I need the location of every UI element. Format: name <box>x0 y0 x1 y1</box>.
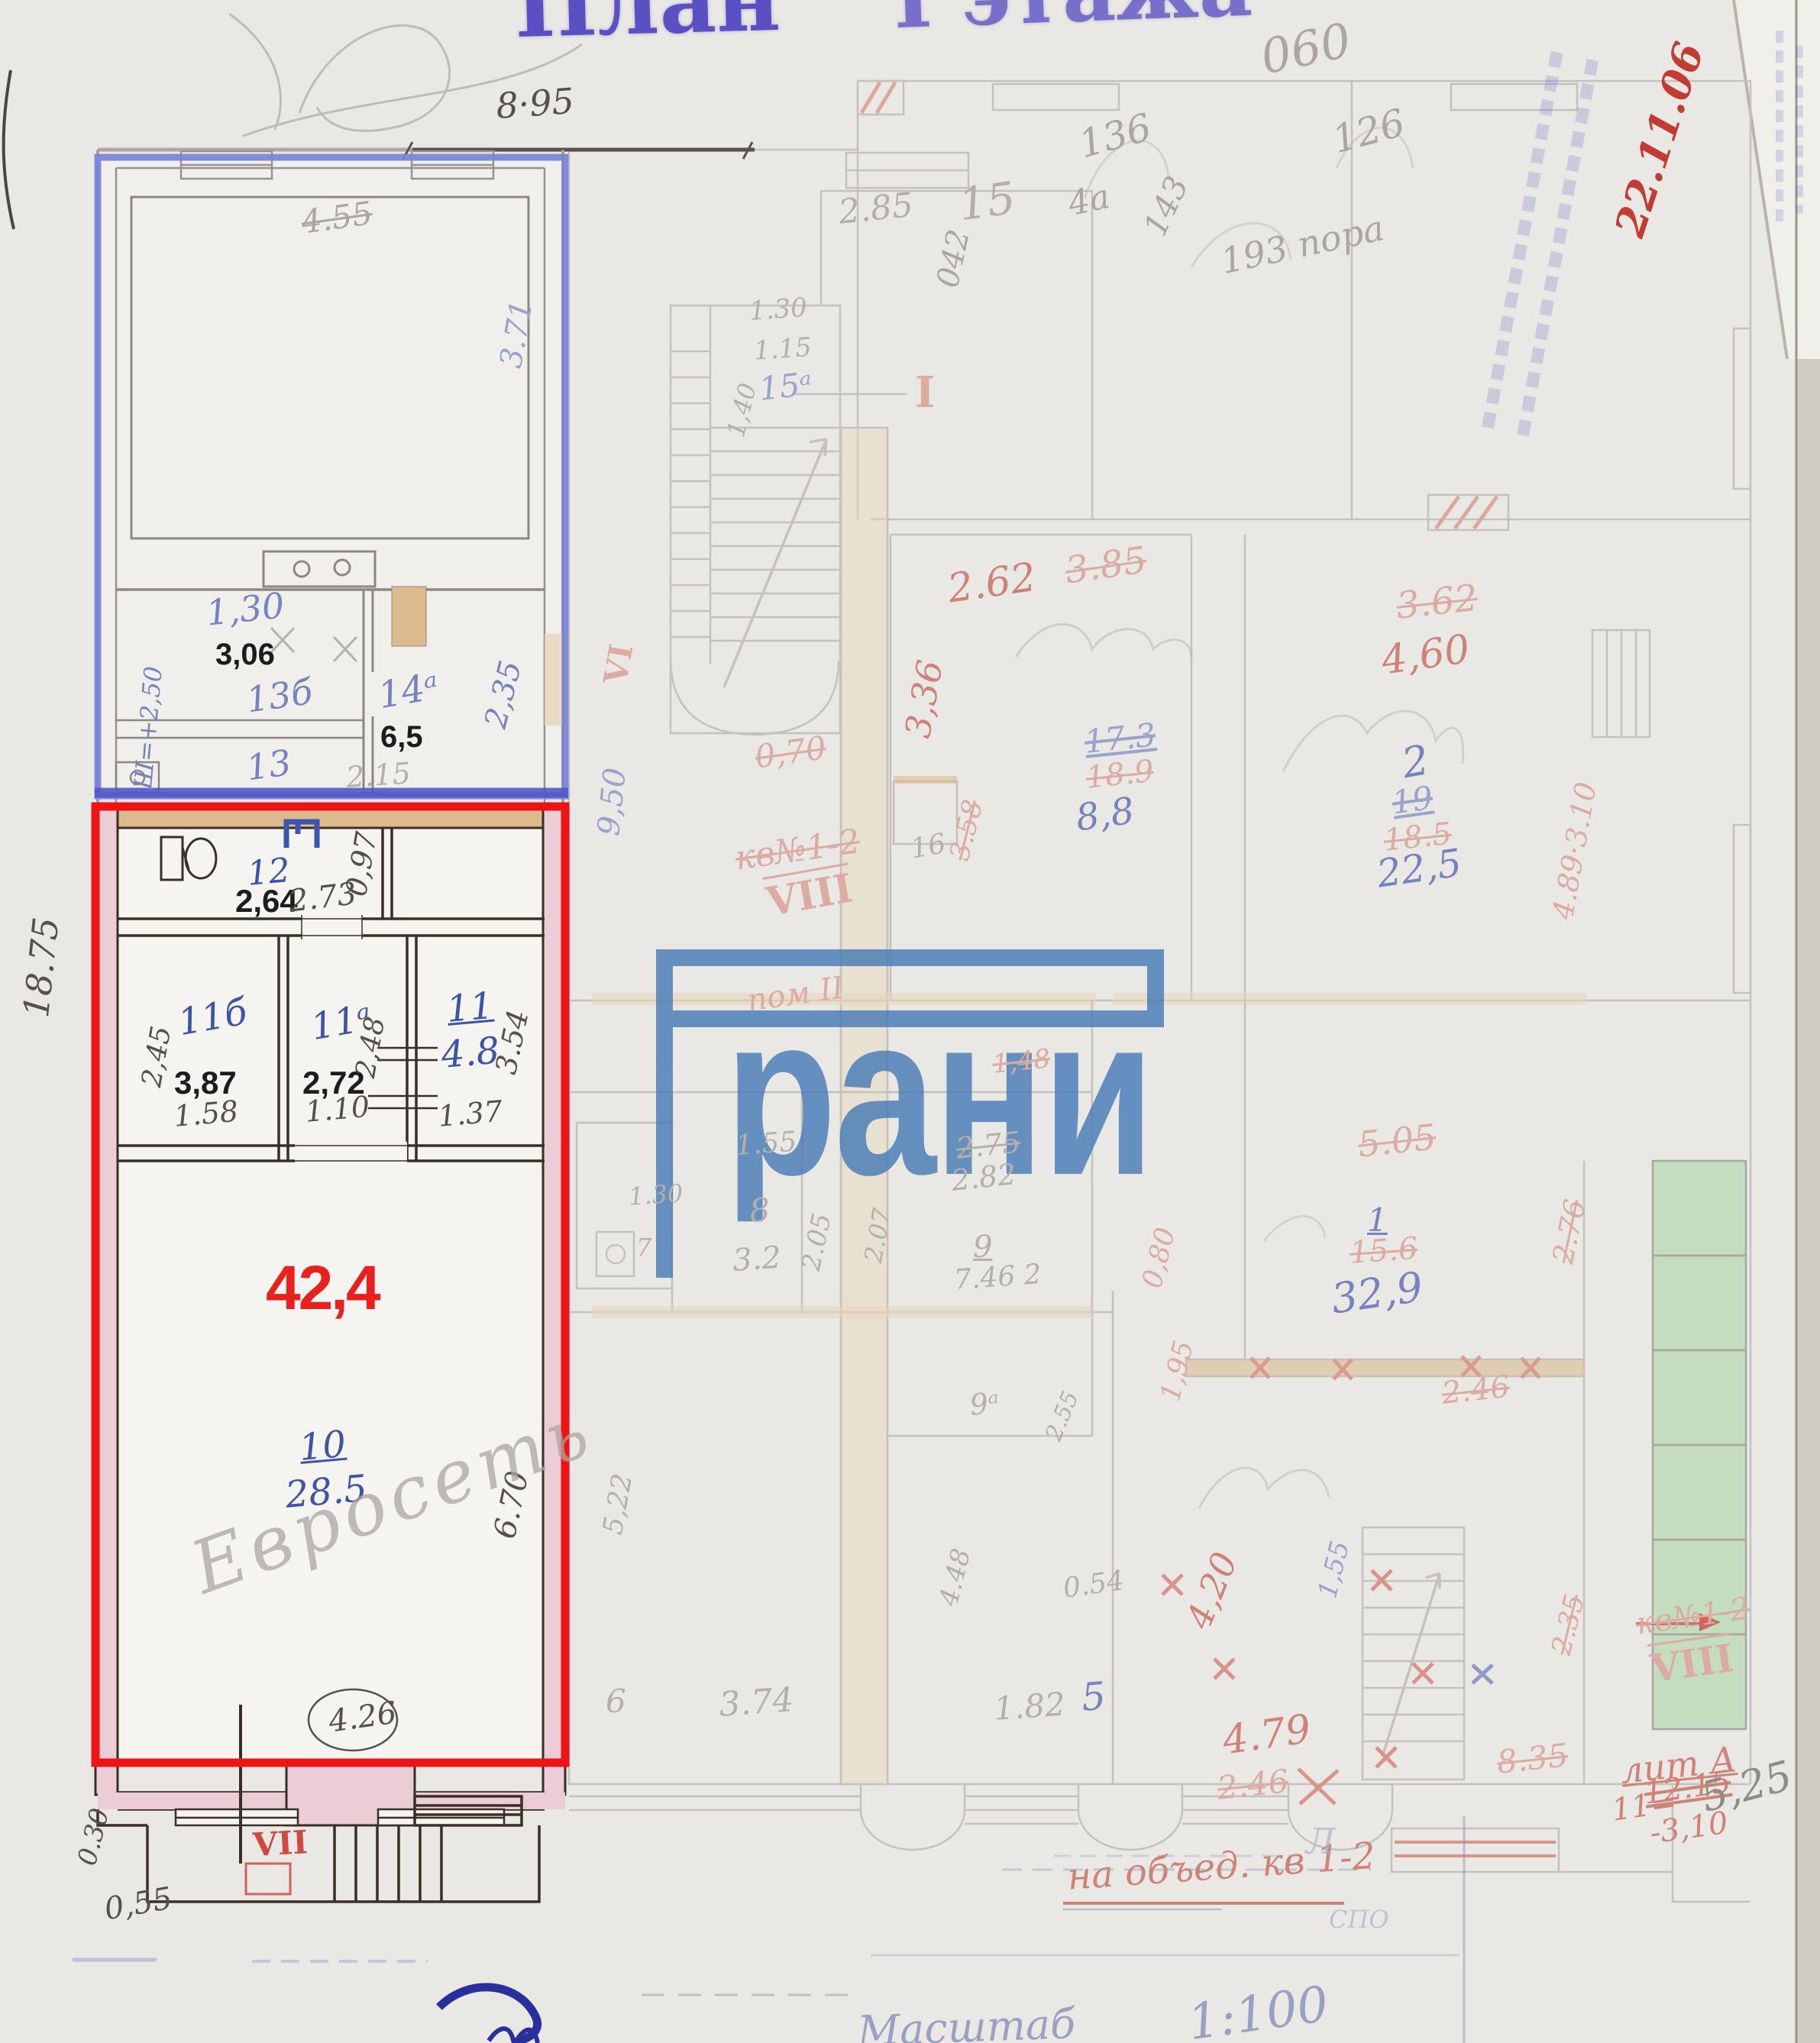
annotation-label: 4,20 <box>1182 1548 1243 1633</box>
annotation-label: VI <box>600 642 637 687</box>
annotation-label: пом II <box>745 973 845 1015</box>
annotation-label: 2.82 <box>950 1160 1017 1194</box>
annotation-label: 4а <box>1065 181 1113 221</box>
annotation-label: 2.35 <box>1549 1592 1589 1657</box>
annotation-label: 2.46 <box>1440 1372 1511 1408</box>
annotation-label: 1.37 <box>437 1097 503 1130</box>
annotation-label: 3,87 <box>174 1068 237 1098</box>
annotation-label: 3.71 <box>496 298 537 370</box>
annotation-label: 4.79 <box>1220 1711 1314 1760</box>
annotation-label: 2,35 <box>481 658 525 732</box>
annotation-label: 3.85 <box>1063 543 1149 589</box>
annotation-label: Л <box>1306 1825 1335 1859</box>
annotation-label: 0,80 <box>1140 1225 1180 1291</box>
annotation-label: 0.30 <box>75 1806 113 1868</box>
annotation-label: I <box>915 373 935 413</box>
annotation-label: 2.05 <box>799 1211 835 1273</box>
annotation-label: 3.74 <box>718 1684 795 1721</box>
annotation-label: 1,30 <box>205 589 286 630</box>
annotation-label: СПО <box>1329 1908 1389 1931</box>
annotation-label: 22,5 <box>1375 845 1464 894</box>
annotation-label: 1.30 <box>748 296 808 324</box>
annotation-label: 18.9 <box>1085 757 1156 793</box>
annotation-label: 2.15 <box>345 759 412 791</box>
annotation-label: 4.89·3.10 <box>1549 780 1600 921</box>
annotation-label: 060 <box>1257 18 1355 80</box>
annotation-label: 8 <box>748 1194 771 1227</box>
annotation-label: 11 <box>445 989 495 1028</box>
annotation-label: 3.2 <box>732 1243 782 1275</box>
annotation-label: 4.48 <box>936 1547 975 1608</box>
annotation-label: 9ᵃ <box>968 1388 1001 1419</box>
annotation-label: 1.30 <box>628 1182 684 1208</box>
annotation-label: 1 <box>1367 1205 1388 1236</box>
annotation-label: 1,40 <box>724 381 760 439</box>
annotation-label: 0,70 <box>753 732 828 773</box>
annotation-label: 32,9 <box>1329 1267 1425 1319</box>
annotation-label: 14ᵃ <box>376 669 441 714</box>
annotation-label: 9 <box>973 1233 992 1262</box>
annotation-label: 13б <box>244 675 315 717</box>
annotation-label: 13 <box>244 746 293 785</box>
annotation-label: 193 пора <box>1218 212 1387 279</box>
annotation-label: 1.15 <box>753 335 813 364</box>
annotation-label: 8,8 <box>1074 794 1136 836</box>
annotation-label: 3.54 <box>492 1007 532 1076</box>
annotation-label: 143 <box>1140 172 1193 241</box>
annotation-label: 2.07 <box>862 1207 894 1264</box>
annotation-label: 1.58 <box>173 1097 239 1130</box>
annotation-label: 2,45 <box>139 1024 176 1089</box>
annotation-label: 16 <box>909 831 948 863</box>
annotation-label: 1.10 <box>304 1093 370 1126</box>
annotation-label: 18.75 <box>20 916 63 1020</box>
annotation-label: 7.46 2 <box>953 1262 1043 1294</box>
annotation-label: 15 <box>956 177 1018 227</box>
annotation-label: 15.6 <box>1349 1234 1418 1268</box>
annotation-label: 2.46 <box>1216 1766 1290 1803</box>
annotation-label: 6 <box>606 1686 626 1717</box>
annotation-label: 5,22 <box>600 1472 637 1537</box>
annotation-label: 11б <box>176 994 250 1041</box>
annotation-label: 0.54 <box>1062 1568 1126 1602</box>
annotation-label: 3,36 <box>901 658 948 740</box>
annotation-label: 15ᵃ <box>758 369 813 405</box>
annotation-label: 9,50 <box>594 766 630 837</box>
annotation-label: 3.62 <box>1395 581 1479 625</box>
annotation-label: 2.76 <box>1549 1197 1589 1266</box>
annotation-label: 6,5 <box>380 722 423 752</box>
annotation-label: 4.26 <box>327 1699 398 1737</box>
annotation-label: 3.58 <box>947 797 988 863</box>
annotation-label: 126 <box>1329 105 1408 159</box>
scanned-floor-plan-page: рани План I этажа 22.11.06 42,4 на объед… <box>0 0 1820 2043</box>
annotation-label: 042 <box>933 227 974 290</box>
annotation-label: Евросеть <box>183 1395 602 1604</box>
annotation-label: 0,97 <box>342 830 380 899</box>
annotation-label: 19 <box>1390 783 1434 819</box>
annotation-label: 3,06 <box>215 640 275 669</box>
annotation-label: 5 <box>1080 1678 1107 1716</box>
annotation-label: 1,48 <box>991 1046 1052 1077</box>
annotation-label: 17.3 <box>1083 719 1157 757</box>
annotation-label: 5.05 <box>1356 1120 1437 1162</box>
annotation-label: 1.82 <box>993 1689 1066 1724</box>
annotation-label: VII <box>252 1827 309 1860</box>
annotation-label: VIII <box>1648 1640 1736 1687</box>
annotation-label: 1,95 <box>1158 1338 1198 1404</box>
annotation-label: 2.62 <box>946 559 1039 609</box>
annotation-label: 2.55 <box>1043 1388 1082 1444</box>
annotation-label: 4.55 <box>299 198 374 238</box>
annotation-layer: 8·954.553.711,303,0613б13Ш=+2,5014ᵃ6,52,… <box>0 0 1820 2043</box>
annotation-label: 2.85 <box>837 189 915 229</box>
annotation-label: 10 <box>298 1427 348 1466</box>
annotation-label: 2 <box>1399 740 1432 783</box>
annotation-label: 1.55 <box>735 1129 797 1159</box>
annotation-label: 2,48 <box>353 1015 390 1080</box>
annotation-label: 0,55 <box>102 1884 174 1925</box>
annotation-label: Ш=+2,50 <box>131 665 165 790</box>
annotation-label: VIII <box>764 869 855 921</box>
annotation-label: кв№1-2 <box>1634 1594 1751 1638</box>
annotation-label: 4,60 <box>1379 631 1472 680</box>
annotation-label: 7 <box>636 1236 651 1259</box>
annotation-label: 8·95 <box>495 85 575 124</box>
annotation-label: 8.35 <box>1495 1740 1569 1777</box>
annotation-label: 136 <box>1075 109 1155 163</box>
annotation-label: 1,55 <box>1315 1539 1353 1601</box>
